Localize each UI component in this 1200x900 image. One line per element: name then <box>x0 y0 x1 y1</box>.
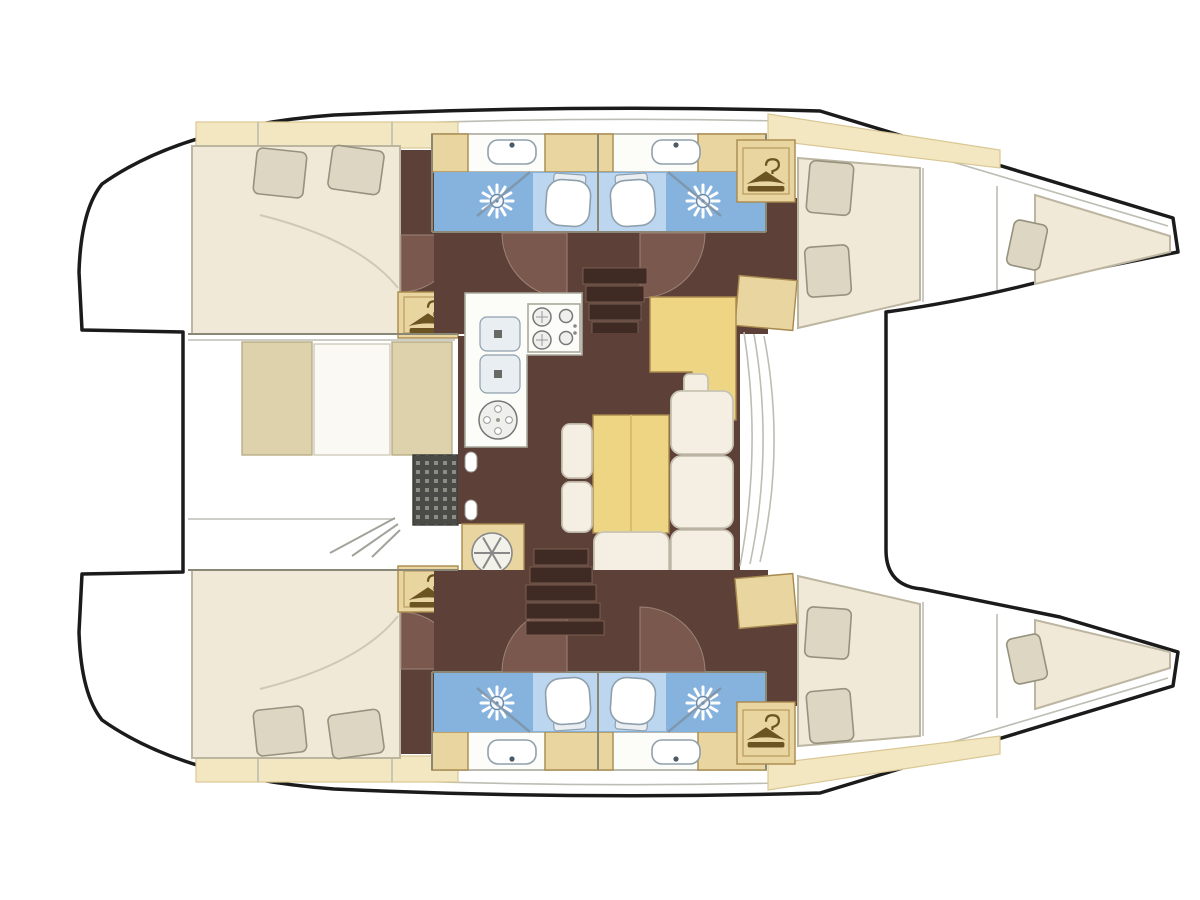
pillow <box>327 145 385 196</box>
pillow <box>806 160 854 216</box>
sofa-cushion <box>671 391 733 454</box>
galley-sinks <box>480 317 520 393</box>
pillow <box>806 688 854 744</box>
port-forward-nook-floor <box>764 198 802 286</box>
sink <box>488 740 536 764</box>
cockpit-center-panel <box>314 344 390 455</box>
pillow <box>804 245 851 298</box>
cockpit-bench-cushion <box>392 342 452 455</box>
starboard-forward-wardrobe <box>737 702 795 764</box>
stove-icon <box>528 304 580 352</box>
sink <box>652 740 700 764</box>
sink <box>488 140 536 164</box>
pillow <box>327 709 385 760</box>
cockpit-bench-cushion <box>242 342 312 455</box>
port-sideboard <box>735 276 797 331</box>
stool <box>562 424 592 478</box>
port-aft-cabin <box>192 122 458 338</box>
pillow <box>253 148 308 199</box>
stool <box>562 482 592 532</box>
door-knob <box>465 500 477 520</box>
sofa-cushion <box>671 456 733 528</box>
port-forward-wardrobe <box>737 140 795 202</box>
floor-grating <box>413 455 458 525</box>
catamaran-floor-plan <box>0 0 1200 900</box>
shelf <box>196 756 458 782</box>
starboard-forward-nook-floor <box>764 618 802 706</box>
door-knob <box>465 452 477 472</box>
pillow <box>253 706 308 757</box>
floor-plan-page <box>0 0 1200 900</box>
pillow <box>804 607 851 660</box>
starboard-hull <box>192 549 1170 790</box>
sink <box>652 140 700 164</box>
starboard-sideboard <box>735 574 797 629</box>
round-hob <box>479 401 517 439</box>
shelf <box>196 122 458 148</box>
starboard-aft-cabin <box>192 566 458 782</box>
